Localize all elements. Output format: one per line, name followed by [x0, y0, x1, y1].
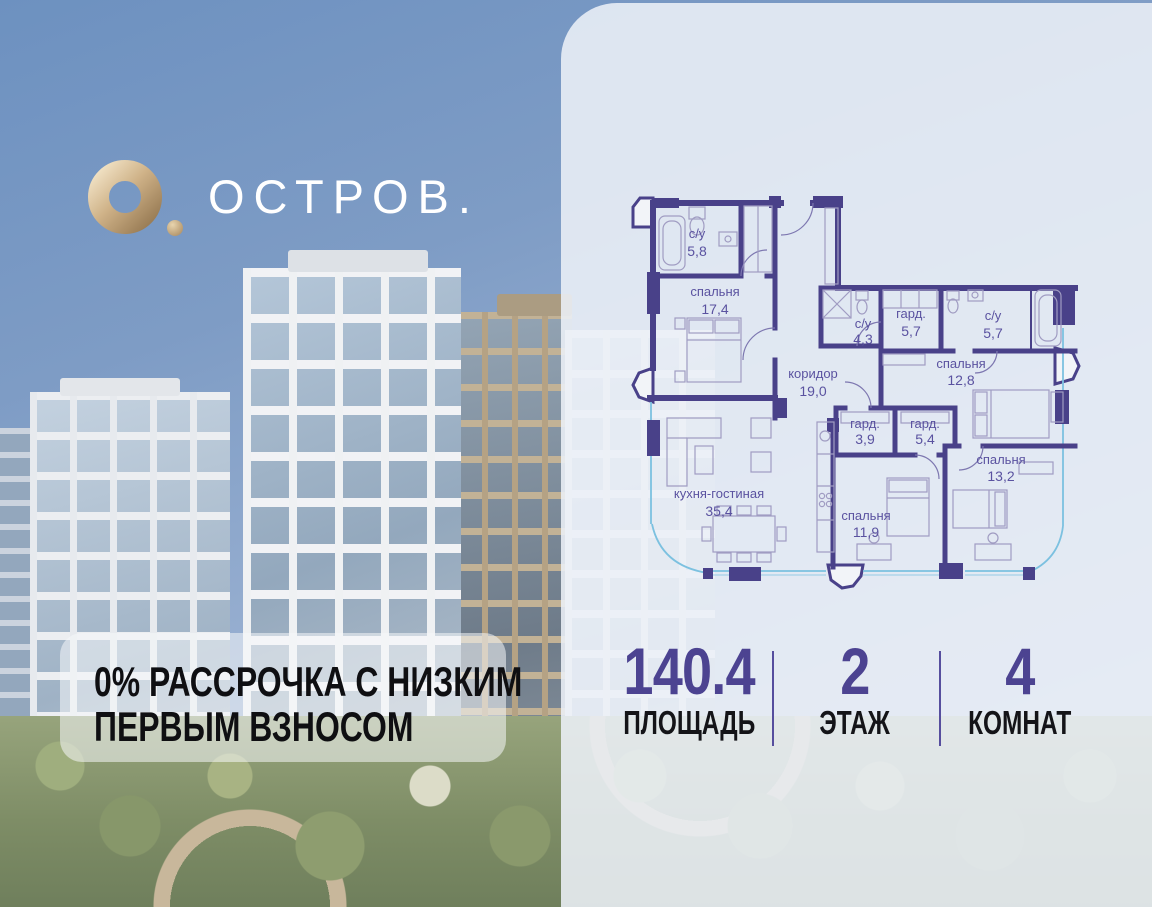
- room-name: с/у: [855, 316, 872, 331]
- room-name: гард.: [910, 416, 940, 431]
- room-name: коридор: [788, 366, 838, 381]
- real-estate-banner: ОСТРОВ.: [0, 0, 1152, 907]
- room-area: 5,4: [915, 431, 935, 447]
- room-area: 5,8: [687, 243, 707, 259]
- room-name: спальня: [690, 284, 739, 299]
- brand-logo: ОСТРОВ.: [88, 158, 480, 240]
- room-area: 12,8: [947, 372, 974, 388]
- room-name: гард.: [850, 416, 880, 431]
- brand-ring-icon: [88, 158, 188, 240]
- building-left-roof: [60, 378, 180, 396]
- room-name: спальня: [841, 508, 890, 523]
- room-name: с/у: [985, 308, 1002, 323]
- room-name: спальня: [976, 452, 1025, 467]
- room-area: 4,3: [853, 331, 873, 347]
- room-area: 5,7: [983, 325, 1003, 341]
- room-name: спальня: [936, 356, 985, 371]
- room-area: 3,9: [855, 431, 875, 447]
- room-area: 5,7: [901, 323, 921, 339]
- stat-rooms-value: 4: [915, 641, 1125, 701]
- room-area: 13,2: [987, 468, 1014, 484]
- stat-rooms: 4 КОМНАТ: [915, 641, 1125, 742]
- room-area: 19,0: [799, 383, 826, 399]
- floor-plan: с/у 5,8 спальня 17,4 коридор 19,0 с/у 4,…: [623, 176, 1085, 600]
- room-area: 11,9: [853, 524, 879, 540]
- stat-rooms-label: КОМНАТ: [915, 704, 1125, 742]
- room-name: гард.: [896, 306, 926, 321]
- room-area: 17,4: [701, 301, 728, 317]
- brand-name: ОСТРОВ.: [208, 169, 480, 230]
- promo-line2: ПЕРВЫМ ВЗНОСОМ: [94, 704, 506, 749]
- building-main-roof: [288, 250, 428, 272]
- room-area: 35,4: [705, 503, 732, 519]
- promo-badge: 0% РАССРОЧКА С НИЗКИМ ПЕРВЫМ ВЗНОСОМ: [60, 633, 506, 762]
- promo-line1: 0% РАССРОЧКА С НИЗКИМ: [94, 659, 506, 704]
- room-name: с/у: [689, 226, 706, 241]
- room-name: кухня-гостиная: [674, 486, 764, 501]
